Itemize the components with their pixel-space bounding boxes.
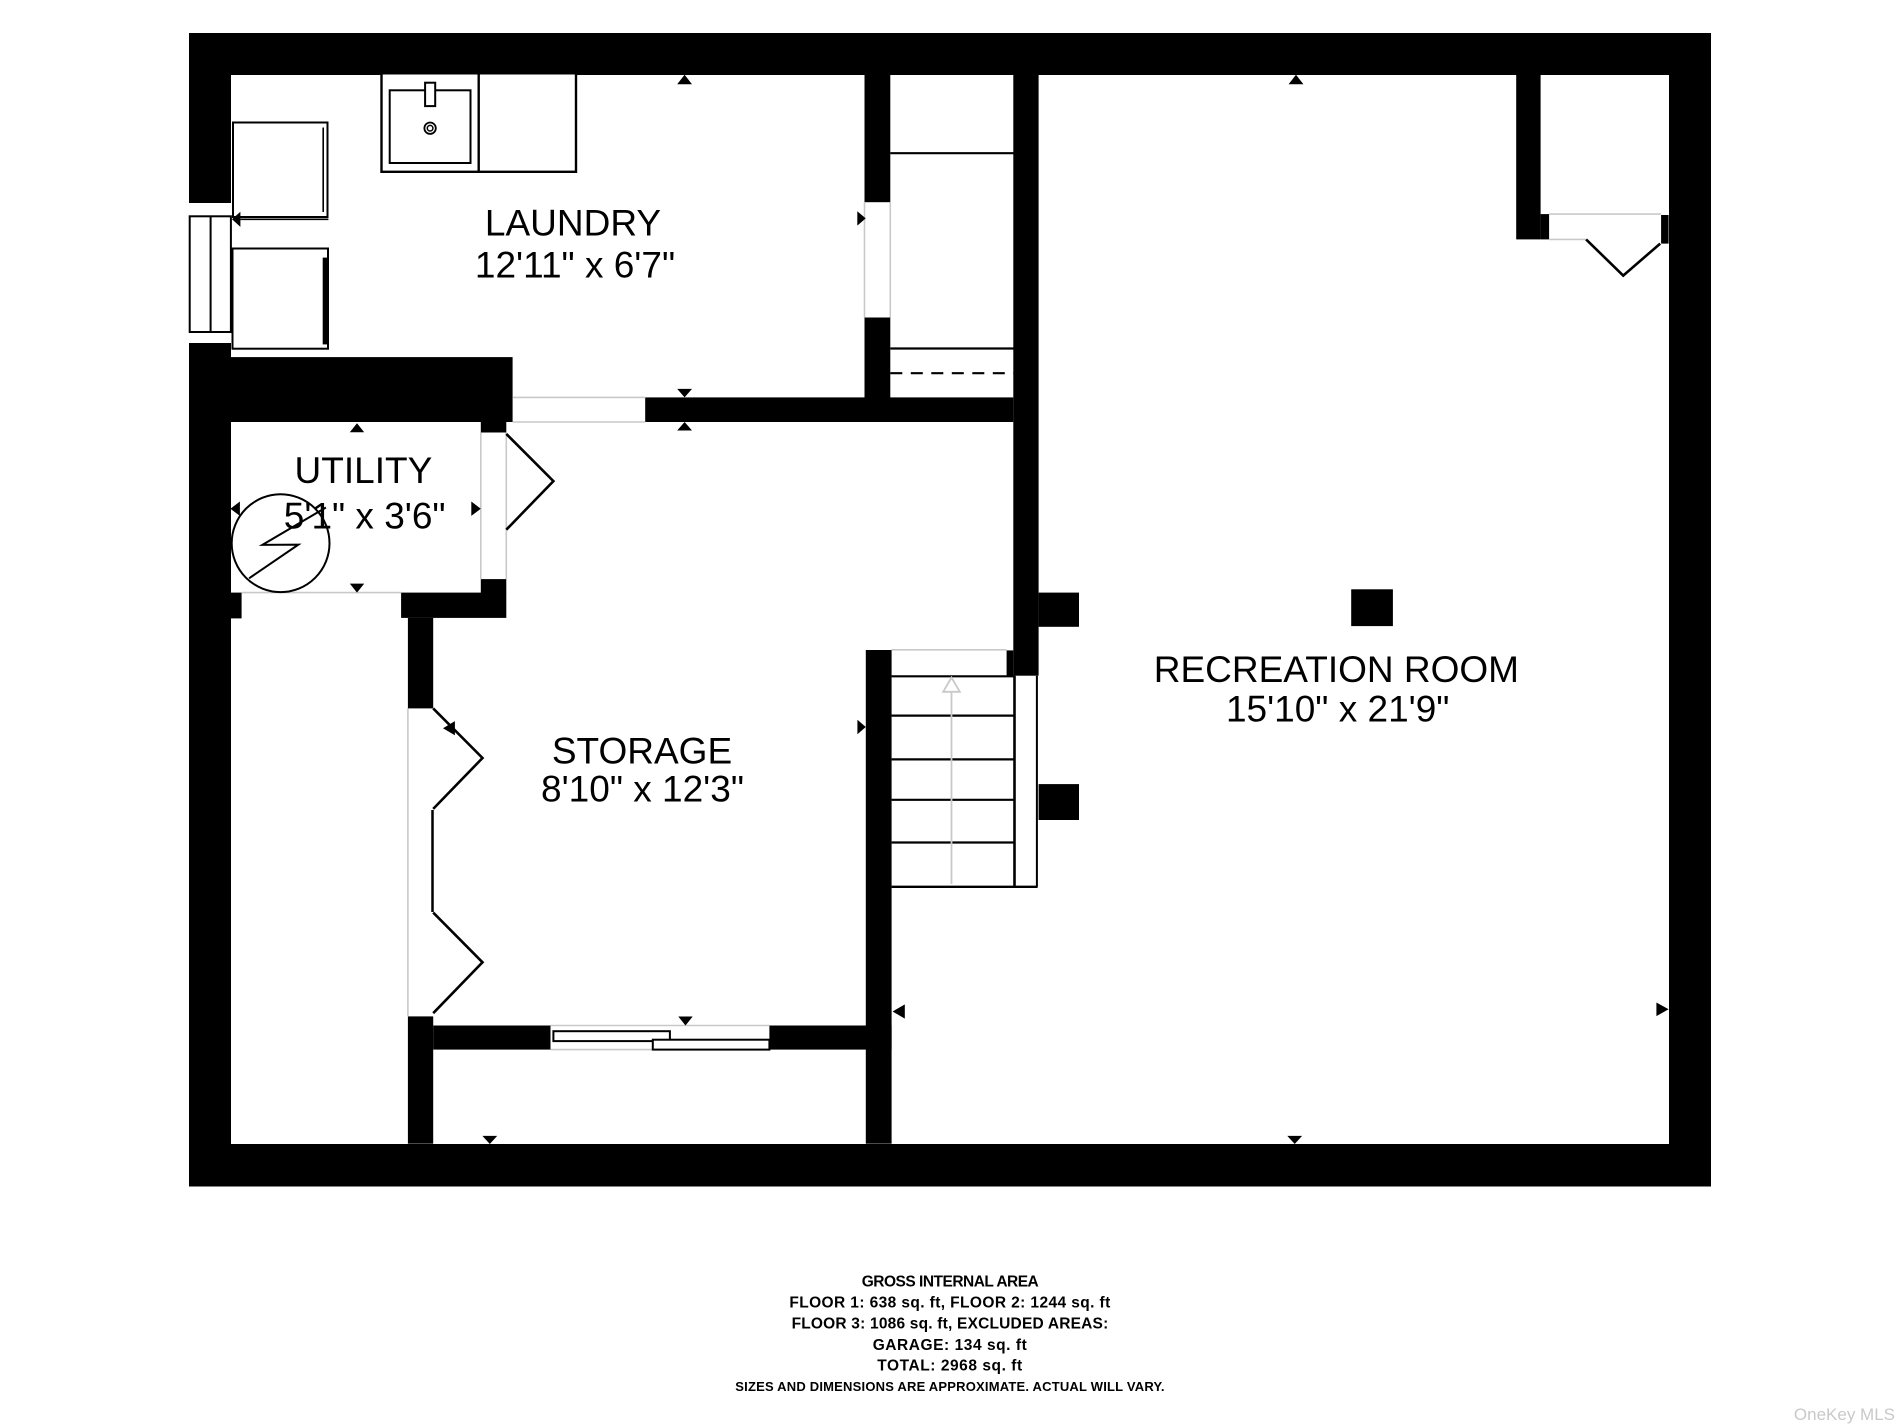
svg-text:LAUNDRY: LAUNDRY [485, 203, 661, 244]
svg-text:STORAGE: STORAGE [552, 731, 732, 772]
svg-text:5'1" x 3'6": 5'1" x 3'6" [284, 496, 446, 537]
svg-text:GROSS INTERNAL AREA: GROSS INTERNAL AREA [862, 1273, 1039, 1290]
svg-text:SIZES AND DIMENSIONS ARE APPRO: SIZES AND DIMENSIONS ARE APPROXIMATE. AC… [735, 1379, 1164, 1394]
svg-text:15'10" x 21'9": 15'10" x 21'9" [1226, 689, 1450, 730]
svg-text:RECREATION ROOM: RECREATION ROOM [1154, 649, 1519, 690]
svg-text:OneKey MLS: OneKey MLS [1794, 1405, 1895, 1424]
svg-text:FLOOR 1: 638 sq. ft, FLOOR 2:: FLOOR 1: 638 sq. ft, FLOOR 2: 1244 sq. f… [789, 1295, 1110, 1312]
svg-text:GARAGE: 134 sq. ft: GARAGE: 134 sq. ft [873, 1337, 1028, 1354]
svg-text:UTILITY: UTILITY [295, 450, 433, 491]
svg-text:12'11" x 6'7": 12'11" x 6'7" [475, 245, 675, 286]
svg-text:TOTAL: 2968 sq. ft: TOTAL: 2968 sq. ft [877, 1358, 1022, 1375]
svg-text:8'10" x 12'3": 8'10" x 12'3" [541, 769, 744, 810]
svg-text:FLOOR 3: 1086 sq. ft, EXCLUDED: FLOOR 3: 1086 sq. ft, EXCLUDED AREAS: [792, 1316, 1109, 1333]
